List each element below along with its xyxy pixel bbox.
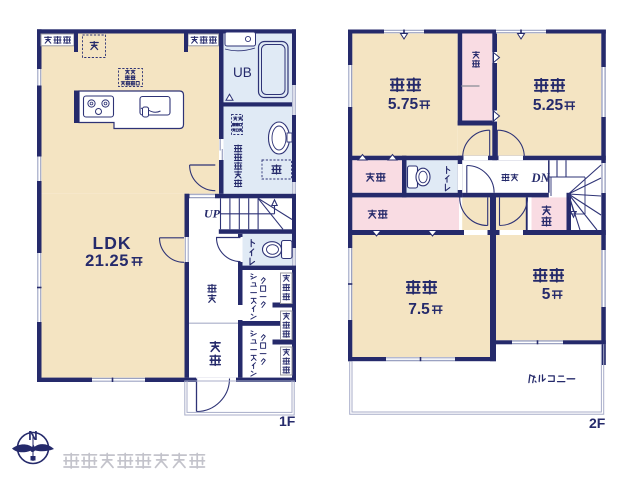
svg-text:1F: 1F	[279, 413, 296, 429]
svg-text:21.25: 21.25	[85, 252, 129, 270]
svg-text:UP: UP	[204, 207, 221, 221]
svg-text:5.75: 5.75	[388, 96, 419, 113]
svg-text:LDK: LDK	[93, 233, 132, 253]
svg-text:DN: DN	[531, 171, 551, 185]
svg-text:7.5: 7.5	[408, 301, 430, 318]
svg-text:5: 5	[542, 286, 551, 303]
svg-text:5.25: 5.25	[533, 97, 564, 114]
svg-text:2F: 2F	[589, 415, 606, 431]
svg-text:UB: UB	[233, 65, 252, 80]
svg-text:N: N	[28, 428, 37, 443]
